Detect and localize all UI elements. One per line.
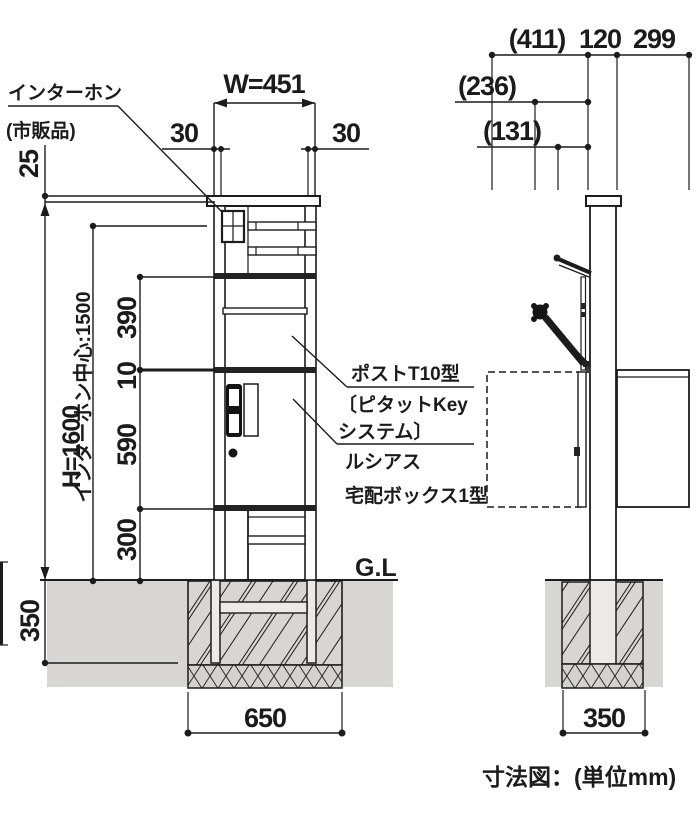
intercom-label: インターホン [8,82,122,104]
dim-offset-right: 30 [332,118,360,148]
post-system-line1: 〔ピタットKey [338,393,468,416]
front-band-2 [214,367,316,373]
arrow-up [41,203,50,216]
louver-slat-2 [248,247,316,255]
front-view [207,196,320,580]
top-center-dimensions: W=451 30 30 [162,69,369,195]
lid-end [554,255,561,262]
dim-intercom-center: インターホン中心:1500 [71,291,95,502]
front-frame-left [214,206,225,580]
ground-line-label: G.L [355,554,397,582]
side-view [487,196,689,580]
dim-open-depth: (411) [509,24,566,54]
post-model-label: ポストT10型 [351,362,460,385]
door-plate [244,384,258,436]
box-front-latch [574,447,580,456]
front-cap [207,196,320,206]
dim-upper-section: 390 [112,297,142,339]
dim-post-depth: 120 [579,24,621,54]
dim-width: W=451 [223,69,305,99]
front-band-3 [214,505,316,511]
door-lock [229,449,238,458]
box-rear-body [617,370,689,507]
door-handle-slot-top [229,389,239,406]
door-handle-slot-bottom [229,414,239,433]
caption: 寸法図：(単位mm) [482,764,676,790]
dim-rear-depth: 299 [633,24,676,54]
arrow-down [41,567,50,580]
door-hinge [583,361,590,367]
post-leg-left [211,580,220,663]
dim-lower-section: 300 [112,519,142,561]
front-band-1 [214,273,316,279]
dim-footing-front: 650 [244,703,286,733]
dim-gap: 10 [112,362,142,390]
dimension-drawing-page: 25 H=1600 350 インターホン中心:1500 390 10 590 3… [0,0,699,813]
front-frame-right [305,206,316,580]
dim-cap-height: 25 [14,149,44,178]
side-post-embedded [590,580,616,664]
product-label: 宅配ボックス1型 [345,484,488,507]
dim-embed-depth: 350 [15,600,45,642]
dim-offset-left: 30 [170,118,198,148]
gravel-front [188,665,342,688]
dimension-drawing: 25 H=1600 350 インターホン中心:1500 390 10 590 3… [0,0,699,813]
lower-rail-2 [248,536,305,544]
dim-middle-section: 590 [112,424,142,466]
series-label: ルシアス [345,452,421,473]
side-cap [586,196,621,206]
side-view-dimensions: (411) 120 299 (236) (131) [455,24,692,190]
intercom-note: (市販品) [6,119,76,142]
post-system-line2: システム〕 [338,420,432,443]
post-leader [292,336,347,387]
post-crossbar [220,602,307,613]
dim-footing-side: 350 [583,703,625,733]
front-mid-rail [223,308,307,314]
bottom-dimensions: 650 350 [185,690,649,737]
louver-slat-1 [248,222,316,230]
dim-door-projection: (236) [458,71,516,101]
side-post [590,206,616,580]
box-front-panel [578,372,586,507]
post-leg-right [307,580,316,663]
delivery-box-outline-dashed [487,372,583,507]
